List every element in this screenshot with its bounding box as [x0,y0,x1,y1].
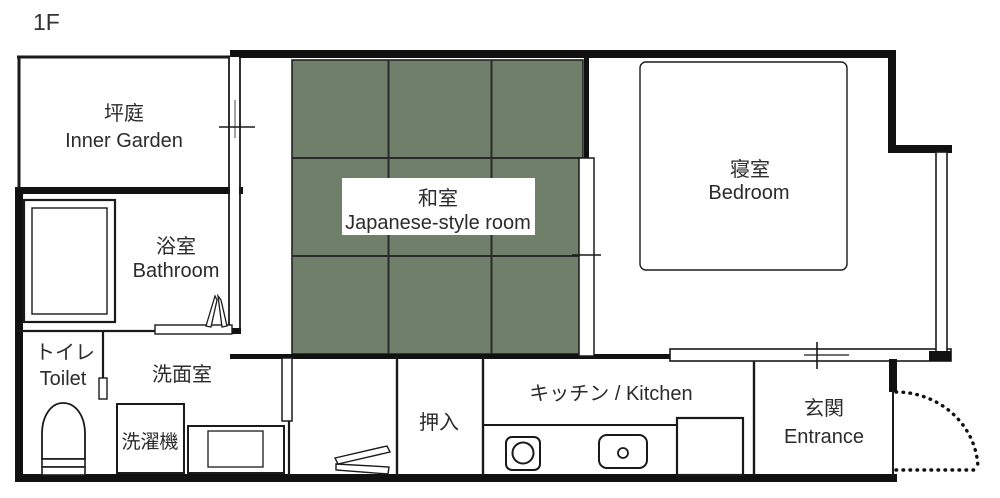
sink-vanity-basin [208,431,263,467]
entrance-wall-cap [889,359,897,392]
storage-row: 押入 [335,357,483,476]
bathtub-inner [32,208,107,314]
washroom-sliding-door [282,358,292,421]
stove-burner-icon [513,443,534,464]
entrance-room: 玄関 Entrance [784,359,978,476]
washing-machine-label: 洗濯機 [121,431,178,453]
floor-plan-drawing: 1F 坪庭 Inner Garden [0,0,1000,498]
wall-right-upper [888,50,896,152]
window-corner-wall [929,351,951,361]
kitchen-end-cabinet [677,418,743,475]
washroom-room: 洗面室 洗濯機 [117,358,292,476]
bay-window [936,152,947,360]
bathroom-folding-door-icon2 [218,296,227,327]
bathroom-room: 浴室 Bathroom [17,200,232,334]
toilet-label-ja: トイレ [35,342,95,364]
bathroom-folding-door-icon [206,296,217,327]
wall-bottom [15,474,897,482]
inner-garden-label-en: Inner Garden [65,130,183,152]
toilet-room: トイレ Toilet [35,331,107,475]
toilet-base-2 [42,467,85,475]
japanese-room-label-ja: 和室 [418,187,458,210]
kitchen-label: キッチン / Kitchen [529,383,692,405]
toilet-fixture-icon [42,403,85,459]
kitchen-room: キッチン / Kitchen [483,357,754,476]
entrance-label-en: Entrance [784,426,864,448]
wall-top [230,50,896,58]
floor-label: 1F [33,9,60,35]
toilet-base-1 [42,459,85,467]
garden-window-gap [230,57,239,330]
entrance-label-ja: 玄関 [804,397,844,420]
entrance-door-swing-arc [896,392,978,470]
kitchen-drain-icon [618,448,628,458]
closet-folding-door-icon [335,446,390,464]
floor-plan-page: 1F 坪庭 Inner Garden [0,0,1000,498]
bedroom-room: 寝室 Bedroom [640,62,847,270]
bedroom-label-en: Bedroom [708,182,789,204]
bedroom-label-ja: 寝室 [730,158,770,181]
japanese-room-label-en: Japanese-style room [345,212,531,234]
bathroom-label-en: Bathroom [133,260,220,282]
closet-folding-door-icon2 [336,464,389,474]
toilet-door [99,378,107,399]
wall-left [15,187,23,482]
inner-garden-label-ja: 坪庭 [104,102,144,125]
fusuma-sliding-door [579,158,594,356]
bathroom-door-sill [155,325,232,334]
toilet-label-en: Toilet [40,368,87,390]
wall-tatami-bedroom-upper [584,50,589,158]
bathroom-label-ja: 浴室 [156,235,196,258]
oshiire-label: 押入 [419,411,459,434]
wall-garden-bottom [15,187,243,194]
washroom-label-ja: 洗面室 [152,363,212,386]
